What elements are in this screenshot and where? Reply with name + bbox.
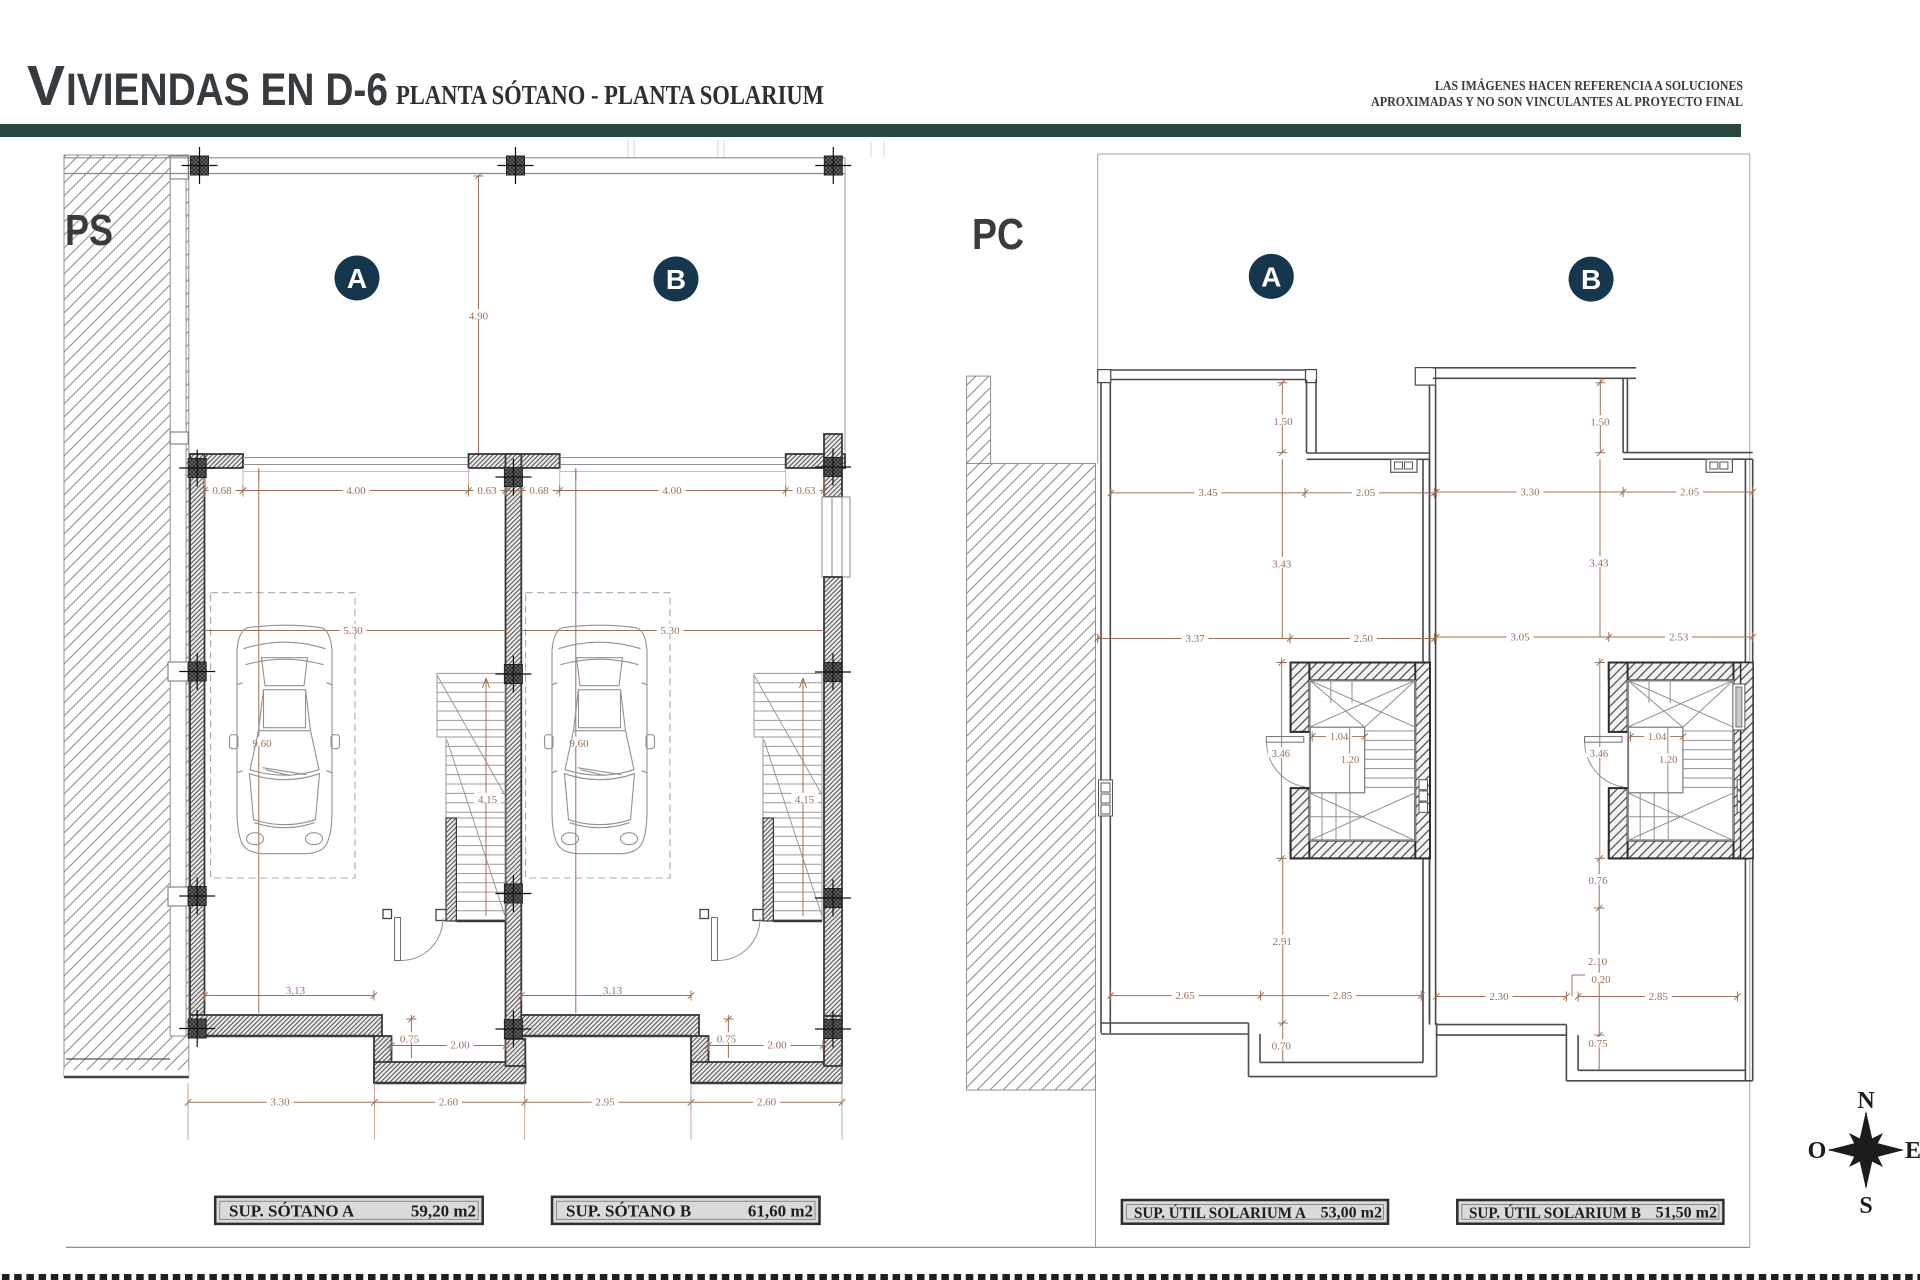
svg-text:N: N [1857, 1088, 1875, 1114]
svg-text:A: A [347, 263, 367, 294]
svg-text:SUP. ÚTIL SOLARIUM A: SUP. ÚTIL SOLARIUM A [1134, 1203, 1306, 1222]
svg-text:3.30: 3.30 [1520, 486, 1540, 498]
svg-text:3.45: 3.45 [1198, 487, 1218, 499]
svg-text:1.20: 1.20 [1341, 755, 1359, 766]
svg-text:3.37: 3.37 [1185, 633, 1205, 645]
svg-text:2.00: 2.00 [767, 1039, 787, 1051]
svg-text:59,20 m2: 59,20 m2 [411, 1202, 476, 1221]
svg-text:3.13: 3.13 [286, 985, 306, 997]
svg-text:2.00: 2.00 [450, 1039, 470, 1051]
svg-text:0.76: 0.76 [1588, 875, 1608, 887]
svg-text:2.53: 2.53 [1669, 631, 1689, 643]
svg-text:0.68: 0.68 [212, 485, 232, 497]
svg-text:2.91: 2.91 [1273, 936, 1292, 948]
svg-text:3.05: 3.05 [1510, 631, 1530, 643]
svg-text:S: S [1859, 1193, 1872, 1219]
svg-text:0.75: 0.75 [717, 1033, 737, 1045]
svg-text:V: V [27, 54, 65, 118]
svg-text:9.60: 9.60 [569, 738, 589, 750]
svg-text:1.50: 1.50 [1273, 416, 1293, 428]
svg-text:0.75: 0.75 [400, 1033, 420, 1045]
svg-text:PLANTA SÓTANO - PLANTA SOLARIU: PLANTA SÓTANO - PLANTA SOLARIUM [396, 80, 824, 110]
svg-text:2.30: 2.30 [1489, 991, 1509, 1003]
svg-text:PC: PC [972, 210, 1024, 259]
svg-text:2.60: 2.60 [757, 1097, 777, 1109]
svg-text:APROXIMADAS Y NO SON VINCULANT: APROXIMADAS Y NO SON VINCULANTES AL PROY… [1371, 95, 1743, 110]
svg-text:O: O [1808, 1138, 1827, 1164]
svg-text:IVIENDAS EN D-6: IVIENDAS EN D-6 [66, 64, 388, 115]
svg-text:1.50: 1.50 [1590, 416, 1610, 428]
svg-text:0.63: 0.63 [477, 485, 497, 497]
svg-text:PS: PS [65, 206, 113, 255]
svg-text:2.50: 2.50 [1354, 633, 1374, 645]
svg-text:2.60: 2.60 [439, 1097, 459, 1109]
svg-text:2.85: 2.85 [1649, 991, 1669, 1003]
svg-text:0.70: 0.70 [1272, 1040, 1292, 1052]
svg-text:0.75: 0.75 [1588, 1038, 1608, 1050]
svg-text:3.13: 3.13 [603, 985, 623, 997]
svg-text:51,50 m2: 51,50 m2 [1656, 1205, 1717, 1222]
svg-text:SUP. SÓTANO B: SUP. SÓTANO B [566, 1202, 691, 1221]
svg-text:3.43: 3.43 [1272, 558, 1292, 570]
svg-text:5.30: 5.30 [343, 625, 363, 637]
svg-text:1.04: 1.04 [1330, 732, 1349, 743]
svg-text:3.46: 3.46 [1272, 749, 1290, 760]
svg-text:0.63: 0.63 [796, 485, 816, 497]
svg-text:LAS IMÁGENES HACEN REFERENCIA: LAS IMÁGENES HACEN REFERENCIA A SOLUCION… [1435, 77, 1743, 94]
svg-text:5.30: 5.30 [660, 625, 680, 637]
svg-text:4.00: 4.00 [662, 485, 682, 497]
svg-text:4.00: 4.00 [346, 485, 366, 497]
svg-text:3.30: 3.30 [270, 1097, 290, 1109]
svg-text:2.05: 2.05 [1356, 487, 1376, 499]
svg-text:53,00 m2: 53,00 m2 [1321, 1205, 1382, 1222]
svg-text:0.68: 0.68 [529, 485, 549, 497]
svg-text:SUP. SÓTANO A: SUP. SÓTANO A [229, 1202, 355, 1221]
svg-text:3.43: 3.43 [1589, 557, 1609, 569]
svg-text:B: B [666, 264, 686, 295]
svg-text:E: E [1905, 1138, 1920, 1164]
svg-text:2.85: 2.85 [1333, 990, 1353, 1002]
svg-text:61,60 m2: 61,60 m2 [748, 1202, 813, 1221]
svg-text:4.15: 4.15 [478, 794, 498, 806]
svg-text:2.65: 2.65 [1175, 990, 1195, 1002]
svg-text:0.20: 0.20 [1591, 974, 1611, 986]
svg-text:2.95: 2.95 [595, 1097, 615, 1109]
svg-text:SUP. ÚTIL SOLARIUM B: SUP. ÚTIL SOLARIUM B [1469, 1203, 1641, 1222]
svg-text:2.05: 2.05 [1680, 486, 1700, 498]
svg-text:A: A [1261, 261, 1281, 292]
svg-text:4.90: 4.90 [469, 310, 489, 322]
svg-text:2.10: 2.10 [1588, 956, 1608, 968]
svg-text:B: B [1581, 264, 1601, 295]
